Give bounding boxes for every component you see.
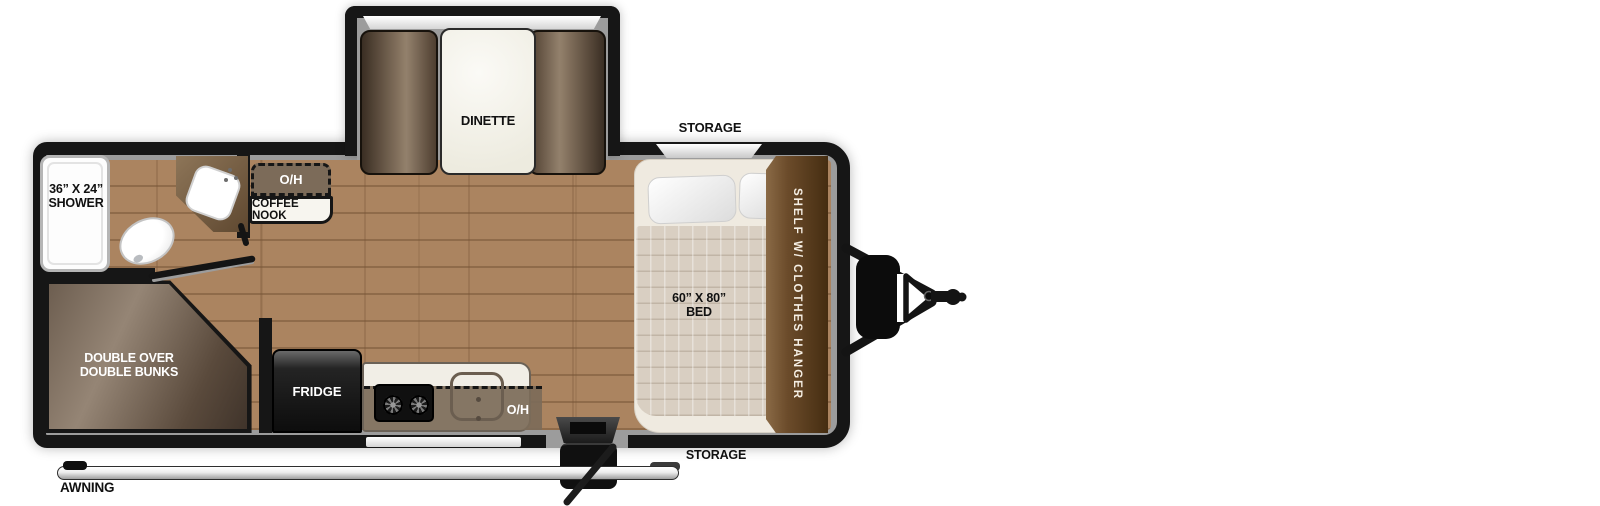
- coffee-nook-label: COFFEE NOOK: [252, 198, 330, 222]
- wardrobe-label: SHELF W/ CLOTHES HANGER: [791, 188, 803, 400]
- faucet-dot: [228, 168, 232, 172]
- coffee-nook-overhead-cabinet: O/H: [251, 163, 331, 196]
- pillow: [647, 174, 737, 224]
- bed-blanket: [636, 226, 778, 416]
- stove-cooktop: [374, 384, 434, 422]
- storage-top-label: STORAGE: [648, 121, 772, 135]
- coupler-pin: [925, 292, 934, 301]
- hitch-bar-top: [846, 248, 932, 294]
- propane-tank: [856, 255, 900, 339]
- awning-end-cap-left: [63, 461, 87, 470]
- storage-bottom-label: STORAGE: [654, 449, 778, 463]
- faucet-dot: [234, 176, 238, 180]
- kitchen-oh-label: O/H: [507, 403, 529, 417]
- kitchen-sink: [450, 372, 504, 421]
- entry-door-panel: [570, 422, 606, 434]
- awning-label: AWNING: [60, 481, 150, 496]
- bunks-line2: DOUBLE BUNKS: [54, 366, 204, 380]
- hitch-bar-bottom: [846, 302, 932, 352]
- faucet-dot: [224, 178, 228, 182]
- shower-label: 36” X 24” SHOWER: [34, 183, 118, 210]
- kitchen-wall: [259, 318, 272, 433]
- dinette-table: DINETTE: [440, 28, 536, 175]
- hitch-ball: [945, 289, 961, 305]
- tongue-triangle: [906, 276, 932, 320]
- coffee-nook: COFFEE NOOK: [249, 196, 333, 224]
- bunks-line1: DOUBLE OVER: [54, 352, 204, 366]
- fridge: FRIDGE: [272, 349, 362, 433]
- coupler-stem: [931, 291, 948, 302]
- bed-label: 60” X 80” BED: [647, 292, 751, 319]
- dinette-label: DINETTE: [442, 114, 534, 128]
- coffee-oh-label: O/H: [279, 172, 302, 187]
- bed-word: BED: [647, 306, 751, 320]
- sink-drain-dot: [476, 416, 481, 421]
- shower-pan: [40, 155, 110, 272]
- dinette-bench-right: [528, 30, 606, 175]
- awning-rail: [57, 466, 679, 480]
- sink-drain-dot: [476, 397, 481, 402]
- wardrobe-shelf: SHELF W/ CLOTHES HANGER: [766, 156, 828, 433]
- hitch-gap: [897, 274, 904, 322]
- rv-floorplan: DINETTE STORAGE 36” X 24” SHOWER O/H COF…: [0, 0, 1600, 506]
- shower-size: 36” X 24”: [34, 183, 118, 197]
- bunks-label: DOUBLE OVER DOUBLE BUNKS: [54, 352, 204, 379]
- shower-word: SHOWER: [34, 197, 118, 211]
- dinette-bench-left: [360, 30, 438, 175]
- stove-burner: [383, 395, 403, 415]
- stove-burner: [409, 395, 429, 415]
- kitchen-window: [366, 437, 521, 447]
- hitch-ball-nub: [958, 293, 967, 302]
- storage-hatch-top: [656, 144, 762, 158]
- bed-size: 60” X 80”: [647, 292, 751, 306]
- entry-door: [556, 417, 620, 443]
- fridge-label: FRIDGE: [292, 384, 341, 399]
